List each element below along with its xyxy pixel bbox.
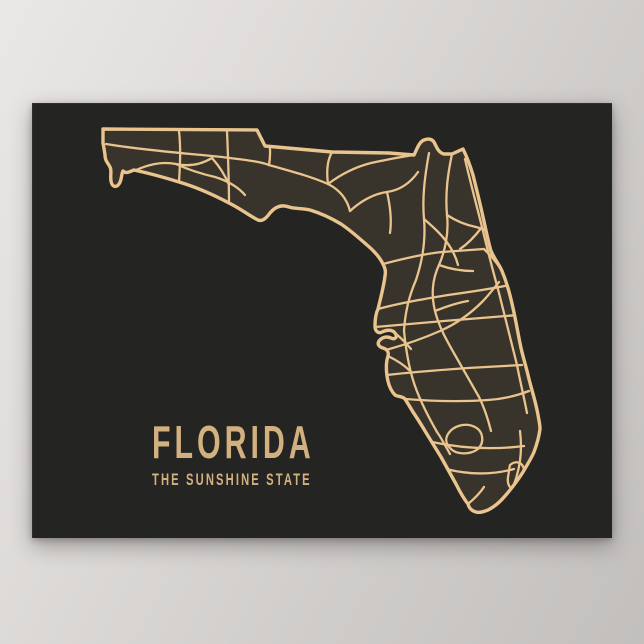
poster-subtitle: THE SUNSHINE STATE <box>152 471 312 488</box>
florida-road-map <box>32 103 612 538</box>
poster: FLORIDA THE SUNSHINE STATE <box>32 103 612 538</box>
wall-background: FLORIDA THE SUNSHINE STATE <box>0 0 644 644</box>
poster-title: FLORIDA <box>152 419 315 465</box>
